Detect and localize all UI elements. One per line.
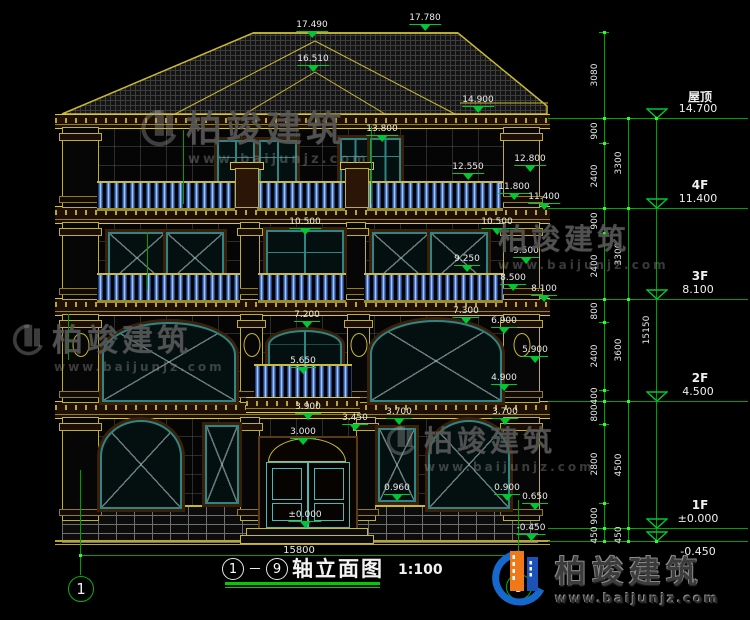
elevation-marker: 3.900 bbox=[295, 403, 321, 420]
dimension-text: 800 bbox=[590, 404, 600, 421]
elevation-marker: 7.300 bbox=[453, 307, 479, 324]
elevation-marker: 13.800 bbox=[366, 125, 398, 142]
elevation-marker: 12.550 bbox=[452, 163, 484, 180]
balustrade-4f-center bbox=[257, 181, 345, 211]
title-underline bbox=[225, 582, 380, 585]
elevation-marker: 14.900 bbox=[462, 96, 494, 113]
elevation-marker: 5.900 bbox=[522, 346, 548, 363]
brand-logo-icon bbox=[487, 545, 547, 609]
dim-node bbox=[627, 527, 630, 530]
elevation-marker: 11.800 bbox=[498, 183, 530, 200]
title-name: 轴立面图 bbox=[292, 558, 384, 580]
balustrade-3f-right bbox=[364, 273, 503, 303]
dimension-text: 900 bbox=[590, 212, 600, 229]
elevation-marker: 10.500 bbox=[289, 218, 321, 235]
title-scale: 1:100 bbox=[398, 560, 443, 580]
dim-node bbox=[603, 389, 606, 392]
dim-chain-line bbox=[628, 118, 629, 541]
elevation-marker: 0.650 bbox=[522, 493, 548, 510]
level-triangle-icon bbox=[646, 518, 668, 529]
floor-level-value: 14.700 bbox=[679, 102, 718, 115]
drawing-title: 1 － 9 轴立面图 1:100 bbox=[222, 558, 443, 580]
floor-level-name: 3F bbox=[692, 269, 709, 283]
dim-node bbox=[627, 540, 630, 543]
balustrade-3f-center bbox=[258, 273, 346, 303]
elevation-marker: 12.800 bbox=[514, 155, 546, 172]
dimension-text: 2400 bbox=[590, 345, 600, 368]
dim-node bbox=[603, 232, 606, 235]
title-axis-start: 1 bbox=[222, 558, 244, 580]
dimension-text: 400 bbox=[590, 387, 600, 404]
elevation-marker: 3.450 bbox=[342, 414, 368, 431]
dimension-text: 15150 bbox=[642, 315, 652, 344]
window-2f-left-arch bbox=[102, 322, 236, 402]
elevation-marker: 5.650 bbox=[290, 357, 316, 374]
dim-node bbox=[655, 117, 658, 120]
balustrade-3f-left bbox=[97, 273, 240, 303]
elevation-marker: 17.490 bbox=[296, 21, 328, 38]
brand-name: 柏竣建筑 bbox=[555, 547, 720, 592]
bottom-dimension-text: 15800 bbox=[283, 545, 315, 556]
elevation-marker: 4.900 bbox=[491, 374, 517, 391]
entry-steps-2 bbox=[240, 535, 374, 544]
floor-level-value: 4.500 bbox=[682, 385, 714, 398]
dim-node bbox=[603, 540, 606, 543]
watermark-logo-icon bbox=[10, 319, 46, 357]
brand-logo: 柏竣建筑 www.baijunjz.com bbox=[487, 545, 720, 609]
pier-3f-left bbox=[62, 222, 99, 300]
pier-1f-doorright bbox=[356, 417, 376, 521]
inner-dimension-line bbox=[68, 314, 69, 360]
dim-node bbox=[603, 31, 606, 34]
dimension-text: 450 bbox=[614, 526, 624, 543]
dim-node bbox=[603, 207, 606, 210]
window-4f-4 bbox=[370, 138, 401, 184]
dim-node bbox=[603, 527, 606, 530]
dim-node bbox=[603, 423, 606, 426]
elevation-marker: ±0.000 bbox=[288, 511, 321, 528]
window-4f-2 bbox=[259, 140, 297, 184]
window-1f-left bbox=[100, 420, 182, 509]
window-1f-narrow-left bbox=[205, 425, 239, 504]
dimension-text: 2400 bbox=[590, 255, 600, 278]
pier-3f-midright bbox=[346, 222, 366, 300]
pier-3f-midleft bbox=[240, 222, 260, 300]
window-2f-right-arch bbox=[370, 320, 502, 402]
dim-node bbox=[627, 117, 630, 120]
level-triangle-icon bbox=[646, 289, 668, 300]
dimension-text: 900 bbox=[590, 122, 600, 139]
inner-dimension-line bbox=[183, 130, 184, 204]
inner-dimension-line bbox=[147, 232, 148, 290]
elevation-marker: 3.700 bbox=[386, 408, 412, 425]
elevation-marker: 9.500 bbox=[513, 247, 539, 264]
floor-level-name: 4F bbox=[692, 178, 709, 192]
dimension-text: 3300 bbox=[614, 152, 624, 175]
dim-node bbox=[603, 298, 606, 301]
elevation-marker: 0.960 bbox=[384, 484, 410, 501]
brand-url: www.baijunjz.com bbox=[555, 592, 720, 607]
dim-node bbox=[627, 207, 630, 210]
pier-4f-left bbox=[62, 127, 99, 208]
dimension-text: 3600 bbox=[614, 339, 624, 362]
dimension-text: 800 bbox=[590, 302, 600, 319]
axis-bubble-1-label: 1 bbox=[76, 580, 86, 598]
balustrade-4f-left bbox=[97, 181, 235, 211]
elevation-marker: 3.700 bbox=[492, 408, 518, 425]
dim-node bbox=[79, 554, 82, 557]
pier-1f-doorleft bbox=[240, 417, 260, 521]
level-triangle-icon bbox=[646, 391, 668, 402]
elevation-marker: 10.500 bbox=[481, 218, 513, 235]
dim-node bbox=[603, 502, 606, 505]
axis-line-1 bbox=[80, 470, 81, 575]
elevation-marker: -0.450 bbox=[516, 524, 545, 541]
axis-bubble-1: 1 bbox=[68, 576, 94, 602]
elevation-marker: 11.400 bbox=[528, 193, 560, 210]
elevation-marker: 17.780 bbox=[409, 14, 441, 31]
dim-node bbox=[627, 298, 630, 301]
elevation-marker: 6.900 bbox=[491, 317, 517, 334]
floor-level-value: 8.100 bbox=[682, 283, 714, 296]
dimension-text: 4500 bbox=[614, 453, 624, 476]
dim-node bbox=[603, 142, 606, 145]
floor-level-name: 2F bbox=[692, 371, 709, 385]
floor-level-value: 11.400 bbox=[679, 192, 718, 205]
title-axis-end: 9 bbox=[266, 558, 288, 580]
dim-node bbox=[655, 540, 658, 543]
dimension-text: 450 bbox=[590, 526, 600, 543]
cad-elevation-drawing: 17.49017.78016.51014.90013.80012.80012.5… bbox=[0, 0, 750, 620]
elevation-marker: 8.100 bbox=[531, 285, 557, 302]
pedestal bbox=[235, 168, 259, 208]
elevation-marker: 8.500 bbox=[500, 274, 526, 291]
elevation-marker: 3.000 bbox=[290, 428, 316, 445]
title-underline-2 bbox=[225, 587, 380, 588]
roof-eave-cornice bbox=[55, 114, 550, 129]
dimension-text: 2400 bbox=[590, 164, 600, 187]
floor-level-value: ±0.000 bbox=[678, 512, 719, 525]
elevation-marker: 7.200 bbox=[294, 311, 320, 328]
elevation-marker: 16.510 bbox=[297, 55, 329, 72]
dim-node bbox=[627, 400, 630, 403]
dim-node bbox=[603, 117, 606, 120]
dimension-text: 2800 bbox=[590, 452, 600, 475]
dim-node bbox=[603, 400, 606, 403]
elevation-marker: 0.900 bbox=[494, 484, 520, 501]
dim-node bbox=[603, 321, 606, 324]
pedestal bbox=[345, 168, 369, 208]
title-dash: － bbox=[248, 560, 262, 580]
floor-level-name: 1F bbox=[692, 498, 709, 512]
level-triangle-icon bbox=[646, 198, 668, 209]
dim-chain-line bbox=[656, 118, 657, 541]
dimension-text: 3080 bbox=[590, 64, 600, 87]
dimension-text: 900 bbox=[590, 507, 600, 524]
elevation-marker: 9.250 bbox=[454, 255, 480, 272]
dimension-text: 3300 bbox=[614, 242, 624, 265]
balustrade-4f-right bbox=[367, 181, 503, 211]
